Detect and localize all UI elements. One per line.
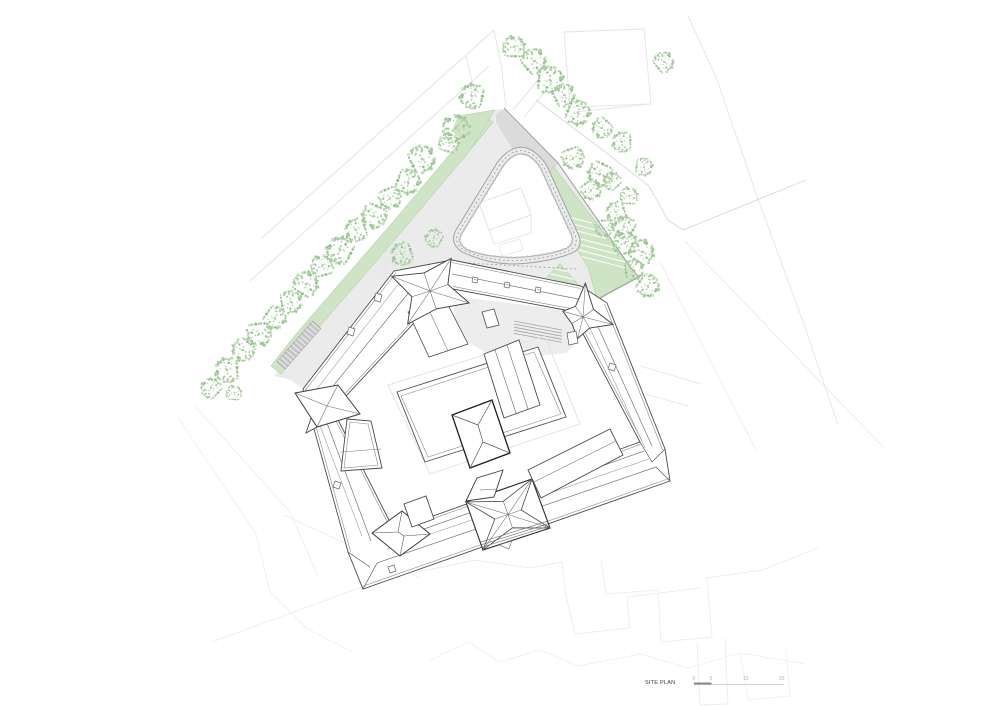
svg-text:0: 0 xyxy=(693,676,696,682)
svg-text:SITE PLAN: SITE PLAN xyxy=(645,680,675,686)
svg-text:5: 5 xyxy=(710,676,713,682)
svg-text:25: 25 xyxy=(779,676,785,682)
svg-text:10: 10 xyxy=(743,676,749,682)
